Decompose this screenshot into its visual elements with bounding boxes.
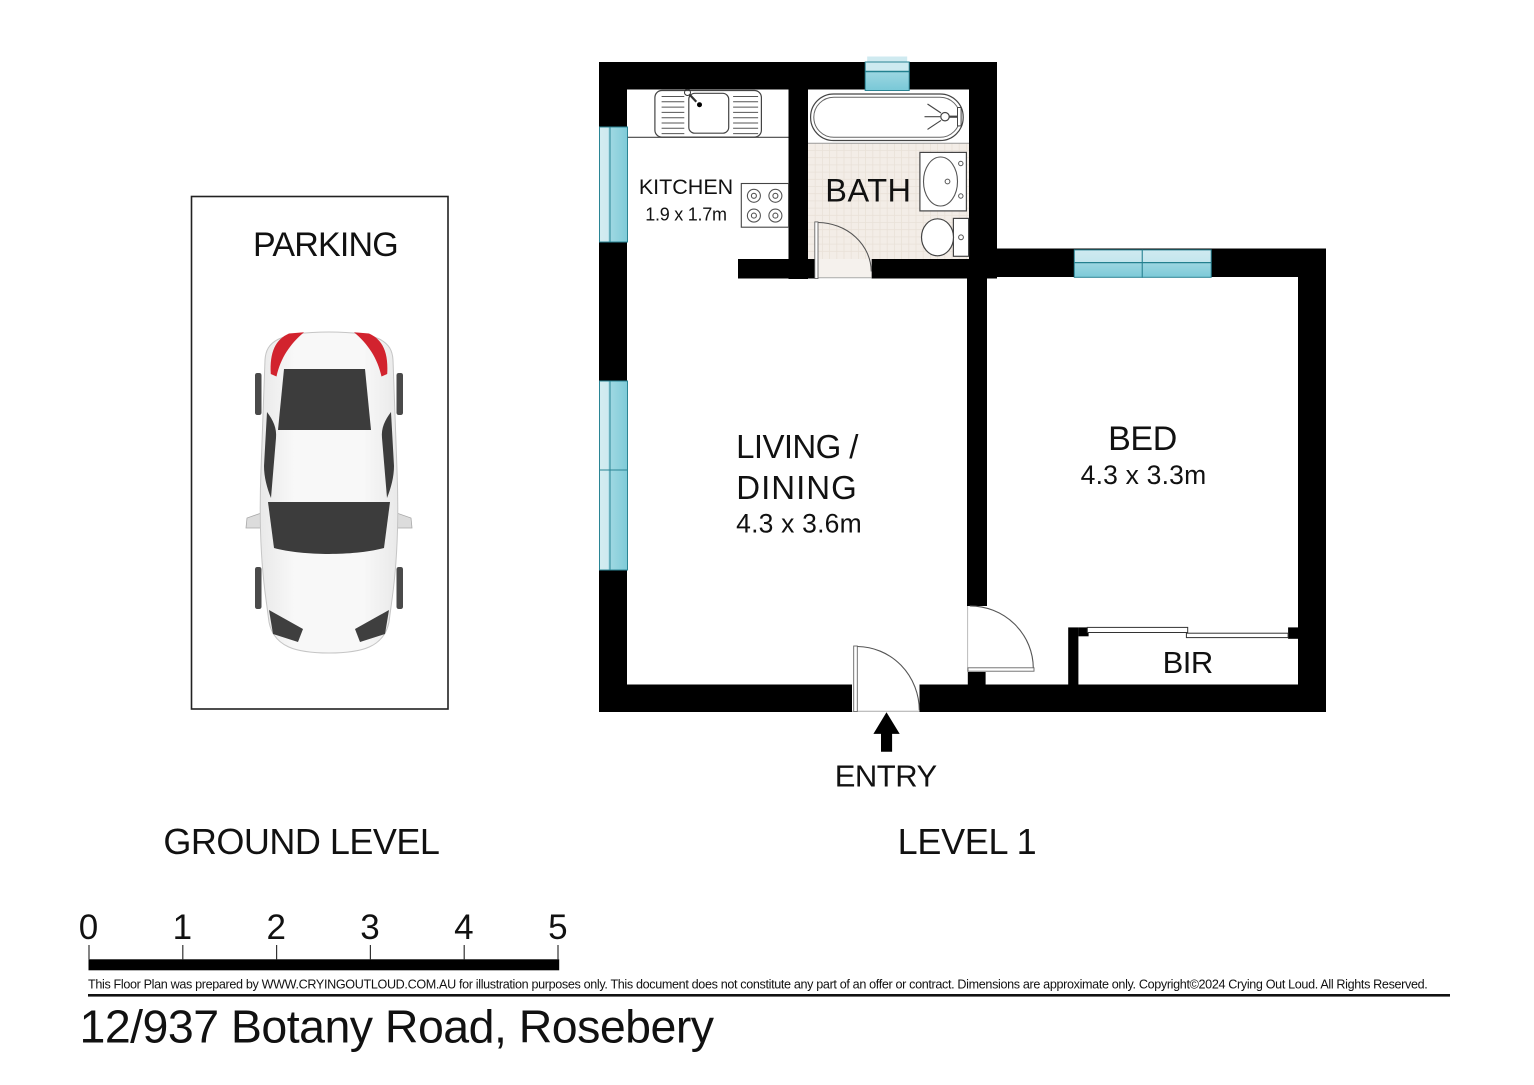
svg-text:2: 2 [266,908,285,947]
svg-text:BED: BED [1108,420,1177,458]
svg-text:4.3 x 3.3m: 4.3 x 3.3m [1081,460,1207,490]
svg-text:4.3 x 3.6m: 4.3 x 3.6m [736,509,862,539]
svg-text:This Floor Plan was prepared b: This Floor Plan was prepared by WWW.CRYI… [88,978,1427,992]
svg-text:BATH: BATH [825,173,911,209]
svg-text:0: 0 [79,908,98,947]
svg-text:PARKING: PARKING [253,226,398,264]
svg-text:KITCHEN: KITCHEN [639,175,733,199]
svg-text:GROUND LEVEL: GROUND LEVEL [163,821,439,862]
svg-text:12/937 Botany Road, Rosebery: 12/937 Botany Road, Rosebery [80,1001,715,1053]
svg-text:1: 1 [173,908,192,947]
svg-text:LEVEL 1: LEVEL 1 [898,821,1037,862]
svg-text:DINING: DINING [736,469,858,506]
svg-text:4: 4 [454,908,473,947]
svg-text:3: 3 [360,908,379,947]
svg-text:ENTRY: ENTRY [835,759,937,794]
svg-text:1.9 x 1.7m: 1.9 x 1.7m [645,205,727,225]
svg-text:LIVING /: LIVING / [736,428,859,465]
svg-text:BIR: BIR [1163,645,1213,680]
svg-text:5: 5 [548,908,567,947]
